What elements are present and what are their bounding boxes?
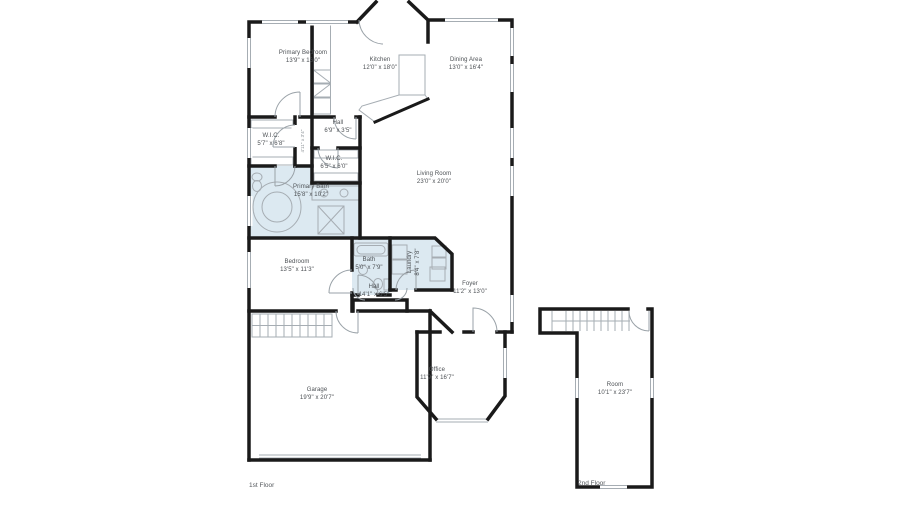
room-label-bath: Bath 5'0" x 7'9" (355, 256, 382, 272)
room-name: Kitchen (363, 56, 397, 64)
room-label-bedroom: Bedroom 13'5" x 11'3" (280, 258, 314, 274)
room-name: Laundry (406, 248, 414, 275)
room-label-primary-bedroom: Primary Bedroom 13'9" x 16'0" (279, 49, 327, 65)
room-name: Office (420, 366, 454, 374)
room-dims: 6'5" x 6'0" (320, 163, 347, 171)
walls (249, 2, 652, 487)
floor-plan: Primary Bedroom 13'9" x 16'0" Kitchen 12… (0, 0, 900, 529)
room-label-kitchen: Kitchen 12'0" x 18'0" (363, 56, 397, 72)
room-label-laundry: Laundry 8'4" x 7'8" (406, 248, 422, 275)
room-dims: 10'1" x 23'7" (598, 389, 632, 397)
room-name: Primary Bedroom (279, 49, 327, 57)
room-name: Room (598, 381, 632, 389)
room-label-primary-bath: Primary Bath 15'8" x 10'2" (293, 183, 329, 199)
room-dims: 5'7" x 6'8" (257, 140, 284, 148)
room-label-wic-right: W.I.C. 6'5" x 6'0" (320, 155, 347, 171)
room-name: W.I.C. (257, 132, 284, 140)
room-name: Hall (324, 119, 351, 127)
room-label-dining-area: Dining Area 13'0" x 16'4" (449, 56, 483, 72)
room-dims: 11'9" x 16'7" (420, 374, 454, 382)
room-name: Hall (359, 283, 390, 291)
room-dims: 13'0" x 16'4" (449, 64, 483, 72)
room-label-closet: 4'11" x 3'4" (300, 129, 306, 152)
room-name: Primary Bath (293, 183, 329, 191)
room-label-room: Room 10'1" x 23'7" (598, 381, 632, 397)
room-dims: 13'9" x 16'0" (279, 57, 327, 65)
room-dims: 23'0" x 20'0" (417, 178, 451, 186)
room-label-hall-upper: Hall 6'9" x 3'5" (324, 119, 351, 135)
room-label-hall-lower: Hall 14'1" x 6'5" (359, 283, 390, 299)
floor-caption-1st: 1st Floor (249, 482, 274, 489)
room-label-wic-left: W.I.C. 5'7" x 6'8" (257, 132, 284, 148)
room-dims: 6'9" x 3'5" (324, 127, 351, 135)
room-label-foyer: Foyer 11'2" x 13'0" (453, 280, 487, 296)
room-dims: 19'9" x 20'7" (300, 394, 334, 402)
room-name: W.I.C. (320, 155, 347, 163)
room-label-living-room: Living Room 23'0" x 20'0" (417, 170, 451, 186)
room-label-office: Office 11'9" x 16'7" (420, 366, 454, 382)
room-name: Dining Area (449, 56, 483, 64)
room-dims: 5'0" x 7'9" (355, 264, 382, 272)
room-dims: 4'11" x 3'4" (300, 129, 306, 152)
room-dims: 15'8" x 10'2" (293, 191, 329, 199)
room-name: Foyer (453, 280, 487, 288)
floor-caption-2nd: 2nd Floor (578, 480, 605, 487)
room-dims: 13'5" x 11'3" (280, 266, 314, 274)
room-name: Living Room (417, 170, 451, 178)
room-dims: 12'0" x 18'0" (363, 64, 397, 72)
floor-plan-drawing (0, 0, 900, 529)
room-name: Bath (355, 256, 382, 264)
room-label-garage: Garage 19'9" x 20'7" (300, 386, 334, 402)
room-name: Garage (300, 386, 334, 394)
room-dims: 8'4" x 7'8" (414, 248, 422, 275)
room-dims: 14'1" x 6'5" (359, 291, 390, 299)
room-dims: 11'2" x 13'0" (453, 288, 487, 296)
room-name: Bedroom (280, 258, 314, 266)
